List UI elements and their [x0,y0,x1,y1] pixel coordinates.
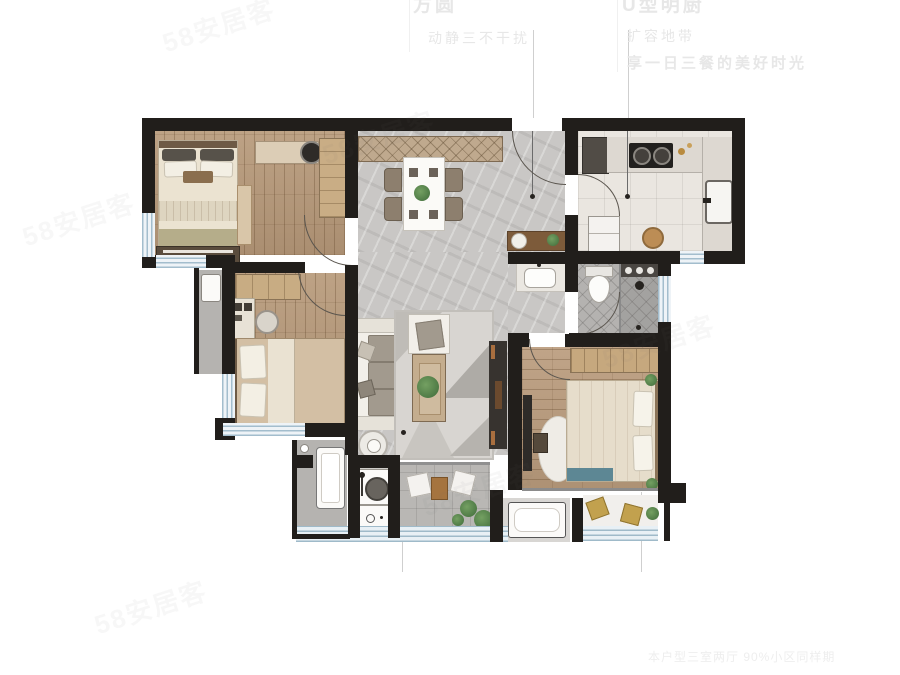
wall-master-balcony-right [664,503,670,541]
wall-kitchen-bottom-right [704,251,745,264]
window-bedroom1-bottom [156,255,206,268]
wall-vanity-top [508,252,568,264]
tv-shelf [495,381,502,409]
monitor [234,303,242,311]
wardrobe [319,138,347,218]
wall-top-right [562,118,745,131]
living-pendant [401,430,406,435]
tv-master [523,395,532,471]
ac-outdoor-unit [316,447,345,509]
round-mat [642,227,664,249]
shower-counter [621,264,658,277]
console-lamp [511,233,527,249]
pendant-light [530,194,535,199]
wall-laundry-right [388,455,400,538]
fridge-divider [589,233,619,234]
window-bedroom1-left [142,213,155,257]
master-balcony-railing [583,526,658,541]
wall-bedroom2-top [228,262,305,273]
dining-chair [384,168,402,192]
watermark: 58安居客 [157,0,280,60]
wall-balcony-left-chunk [490,490,503,542]
master-pillow [632,391,653,428]
vase [367,439,381,453]
bed-pillow-dark [162,149,196,161]
kitchen-sink [705,180,733,224]
bed-throw [159,201,237,221]
master-throw-teal [567,468,613,481]
text-divider-line [409,0,410,52]
vanity-basin [524,268,556,288]
armchair-cushion [415,319,445,350]
gas-stove [629,143,673,168]
sofa-arm [356,319,398,333]
marketing-footer: 本户型三室两厅 90%小区同样期 [648,648,835,665]
marketing-col2-line1: U型明厨 [622,0,705,17]
window-kitchen-bottom [680,251,704,264]
wall-bedrooms-right-upper [345,118,358,218]
bed2 [231,338,345,424]
ac-unit-small [201,274,221,302]
marketing-col1-line1: 方圆 [413,0,457,17]
wall-bedroom2-bottom [305,423,358,437]
window-bedroom2-left [222,374,235,418]
tv-console-living [489,341,507,449]
marketing-col2-line2: 扩容地带 [627,26,695,46]
bed-pillow-dark [200,149,234,161]
ac-platform-inner [514,508,560,532]
dimension-line [402,540,403,572]
stove-burner [653,147,671,165]
marketing-col1-line2: 动静三不干扰 [428,28,530,48]
floorplan-image: 方圆 动静三不干扰 U型明厨 扩容地带 享一日三餐的美好时光 本户型三室两厅 9… [0,0,900,675]
balcony-slide-door [398,462,490,465]
bed-headboard [159,141,237,148]
wall-living-master [508,345,522,490]
sofa-arm [356,416,398,430]
double-bed [158,140,238,252]
cabinet-drain [366,514,375,523]
watermark: 58安居客 [89,571,212,642]
coffee-table-plant [417,376,439,398]
sink-faucet [703,198,711,203]
tv-leg [491,431,495,445]
watermark: 58安居客 [17,183,140,254]
dimension-line [628,30,629,118]
wall-bedroom2-left-upper [222,268,235,374]
spice-jar [678,148,685,155]
wall-laundry-left [348,468,360,538]
keyboard [244,303,252,311]
dining-chair [445,197,463,221]
master-bed [566,380,662,482]
wall-ledge2-thin [194,266,199,374]
rug-triangle [450,416,490,456]
tv-leg [491,345,495,359]
desk2-chair [255,310,279,334]
wall-master-right [658,345,671,483]
desk-item [234,315,242,321]
wall-ledge-thin-left [292,440,297,538]
dimension-line [533,30,534,118]
balcony-table [431,477,448,500]
shower-head [635,281,644,290]
wall-ledge-thin-bottom [292,534,350,539]
sofa [355,318,399,430]
dining-chair [445,168,463,192]
kitchen-tall-cabinet [582,137,609,174]
knob [647,267,654,274]
kitchen-pendant [625,194,630,199]
knob [636,267,643,274]
master-balcony-door [522,488,658,491]
door-arc-bedroom1 [304,215,352,266]
nightstand [237,185,252,245]
knob [625,267,632,274]
master-pillow [632,435,653,472]
window-bedroom2-bottom [223,423,305,436]
shelf-unit [235,274,301,300]
nightstand-plant [645,374,657,386]
ac-inner [321,453,340,503]
bed2-duvet [268,339,295,423]
dresser-slat [163,250,233,253]
bed-runner [183,171,213,183]
wall-balcony-separator [572,498,583,542]
bed2-pillow [239,344,267,379]
text-divider-line [617,0,618,72]
wall-kitchen-left-upper [565,131,578,175]
wall-living-balcony-a1 [295,455,313,468]
armchair [408,314,450,354]
ac-platform-unit [508,502,566,538]
wall-kitchen-bottom-left [565,251,680,264]
floor-drain [636,325,641,330]
placemat [429,210,438,219]
balcony-plant [452,514,464,526]
ac-knob [300,444,309,453]
cabinet-dot [380,516,383,519]
bedroom-bench [533,433,548,453]
marketing-col2-line3: 享一日三餐的美好时光 [627,52,807,73]
wall-bath-left-upper [565,264,578,292]
master-balcony-plant [646,507,659,520]
wall-master-top-right [569,333,671,347]
window-bathroom-right [658,276,671,322]
placemat [409,210,418,219]
wall-top-left [142,118,512,131]
dining-chair [384,197,402,221]
kitchen-pendant-line [627,131,628,195]
lounge-cushion [406,472,432,498]
console-plant [547,234,559,246]
washer-drum [365,477,389,501]
placemat [409,168,418,177]
spice-jar [687,143,692,148]
wall-master-right-step [658,483,686,503]
master-wardrobe [570,348,660,373]
placemat [429,168,438,177]
table-plant [414,185,430,201]
fridge [588,216,620,254]
bed2-pillow [239,382,267,417]
stove-burner [633,147,651,165]
wall-kitchen-right [732,118,745,264]
